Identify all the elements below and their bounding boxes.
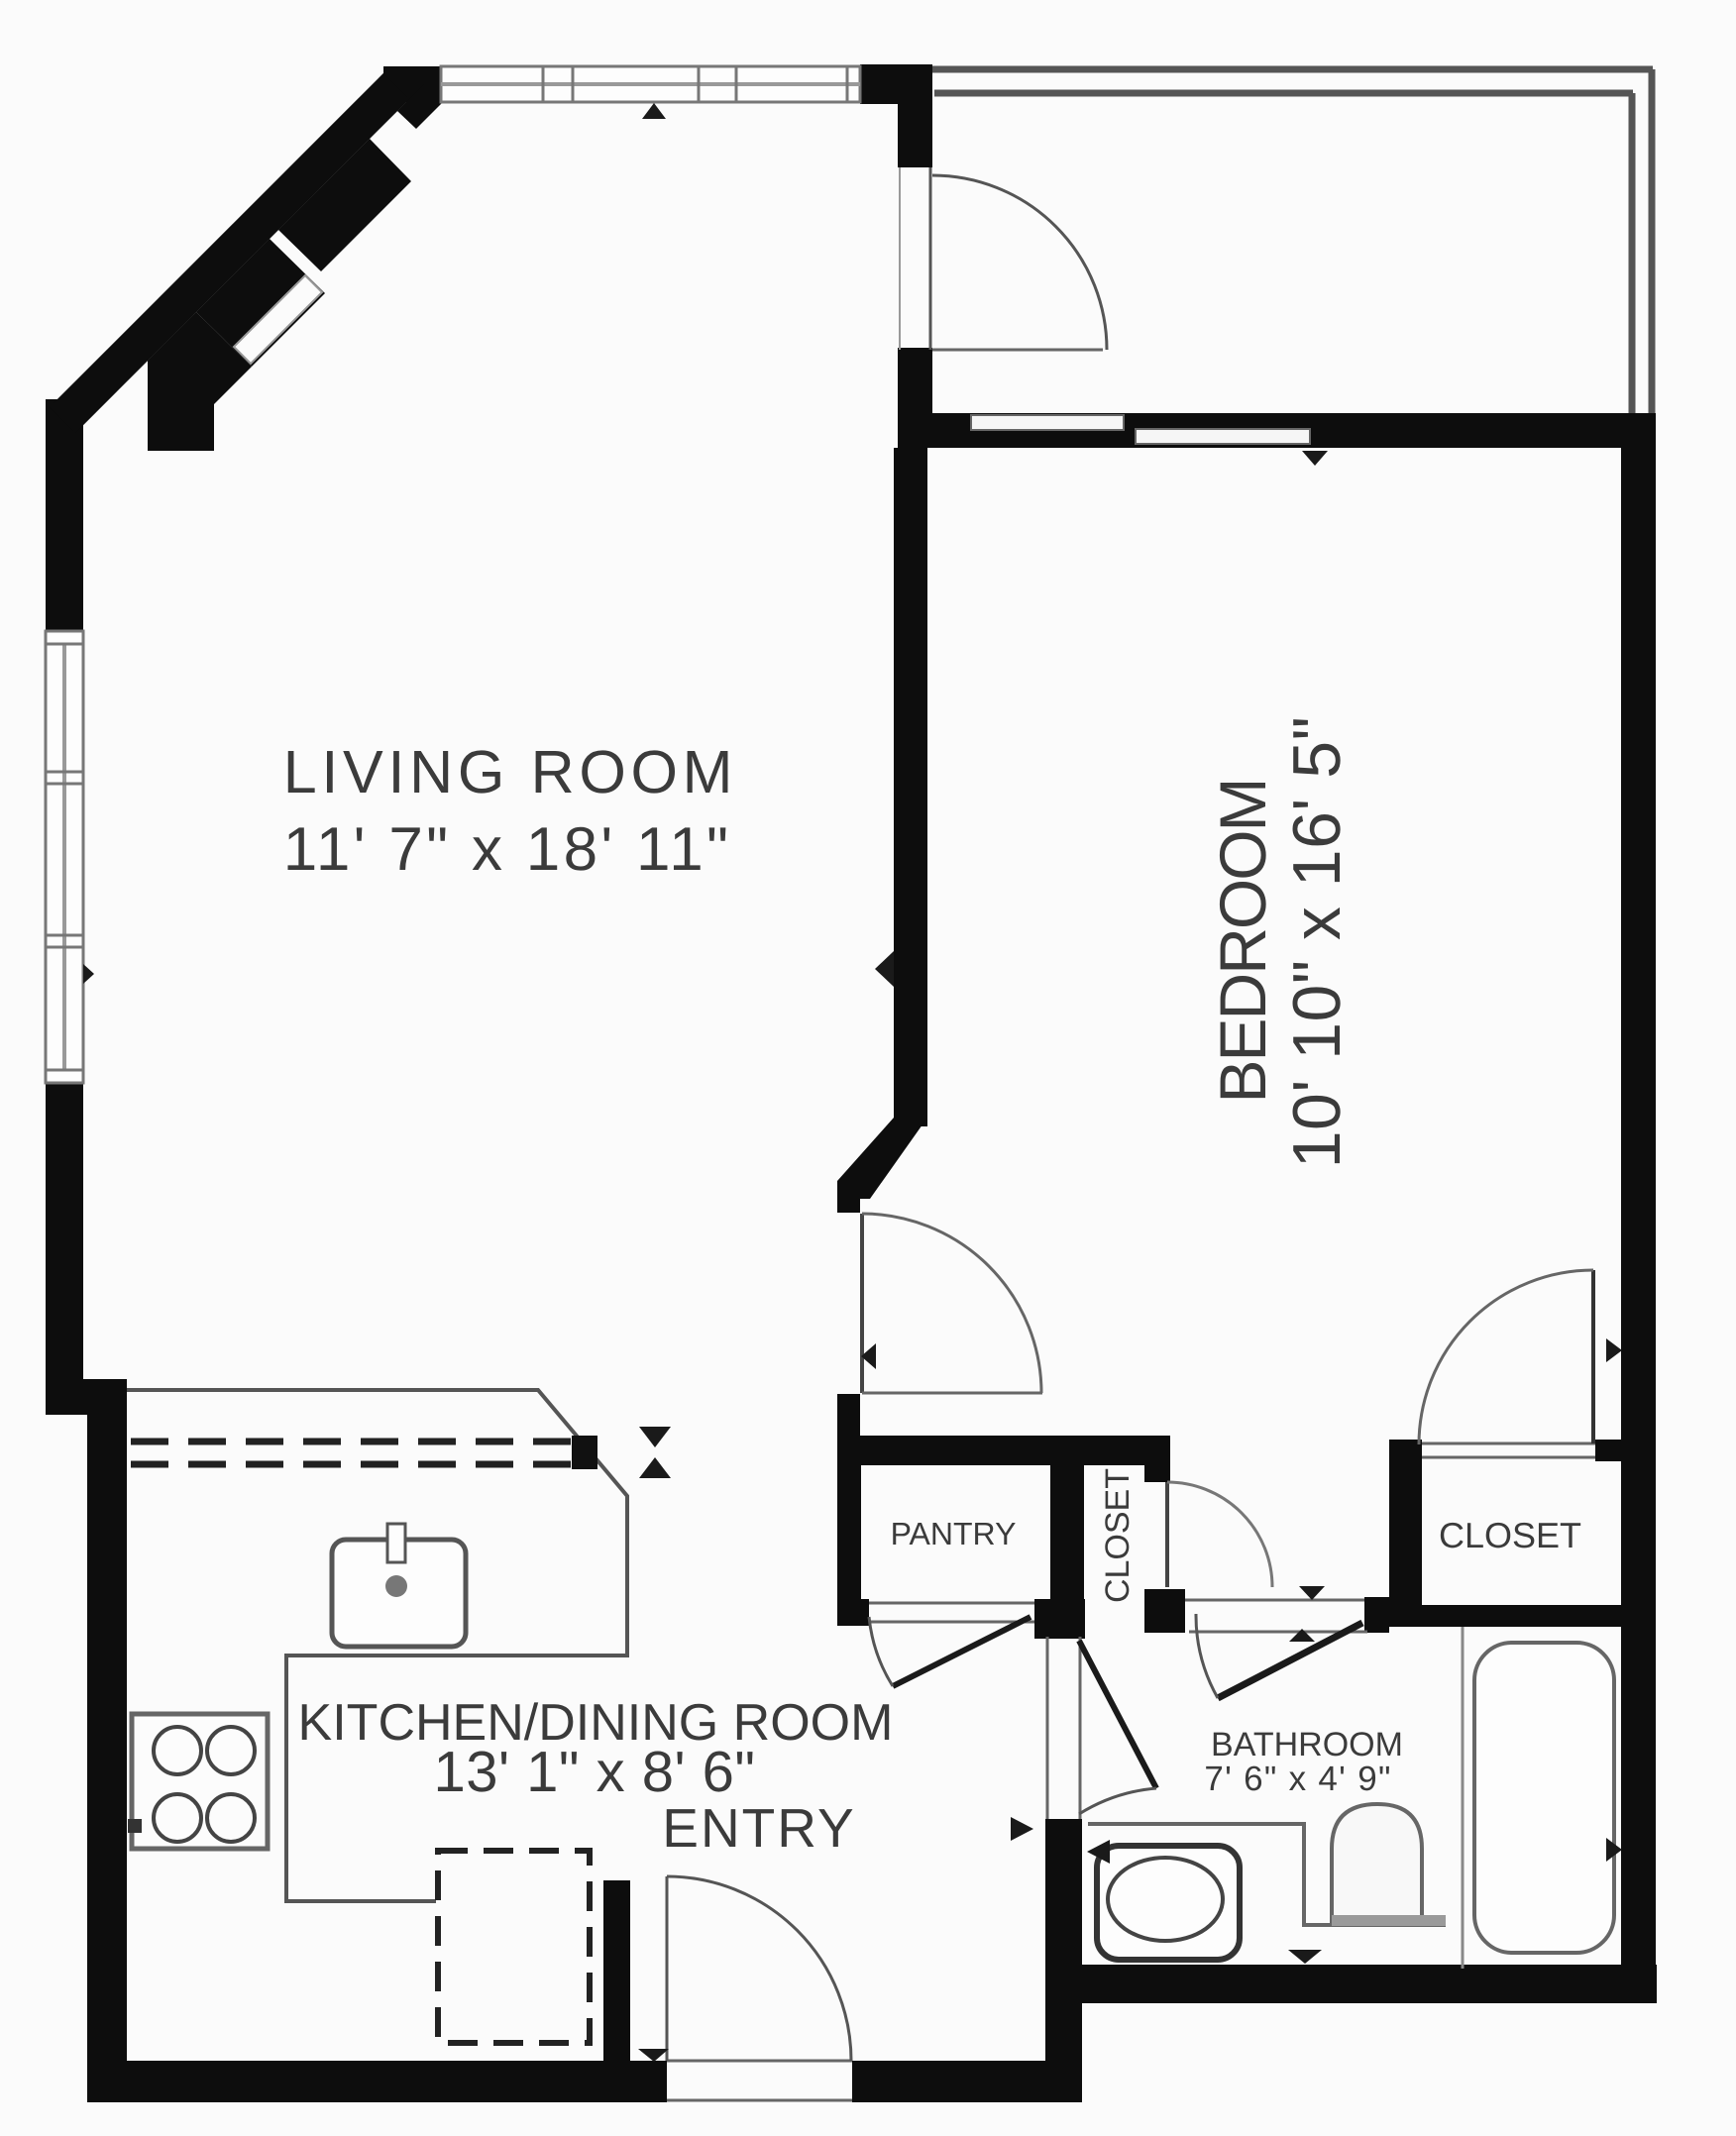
svg-text:13' 1" x 8' 6": 13' 1" x 8' 6" [433, 1740, 755, 1804]
svg-text:CLOSET: CLOSET [1099, 1468, 1137, 1603]
svg-text:PANTRY: PANTRY [891, 1516, 1017, 1551]
svg-text:7' 6" x 4' 9": 7' 6" x 4' 9" [1204, 1760, 1391, 1798]
svg-text:CLOSET: CLOSET [1439, 1515, 1581, 1555]
svg-text:ENTRY: ENTRY [662, 1797, 855, 1859]
svg-text:11' 7" x 18' 11": 11' 7" x 18' 11" [283, 815, 732, 884]
svg-text:LIVING ROOM: LIVING ROOM [283, 738, 737, 805]
svg-text:BATHROOM: BATHROOM [1211, 1726, 1403, 1763]
svg-text:BEDROOM: BEDROOM [1206, 779, 1279, 1103]
svg-text:10' 10" x 16' 5": 10' 10" x 16' 5" [1279, 716, 1355, 1169]
